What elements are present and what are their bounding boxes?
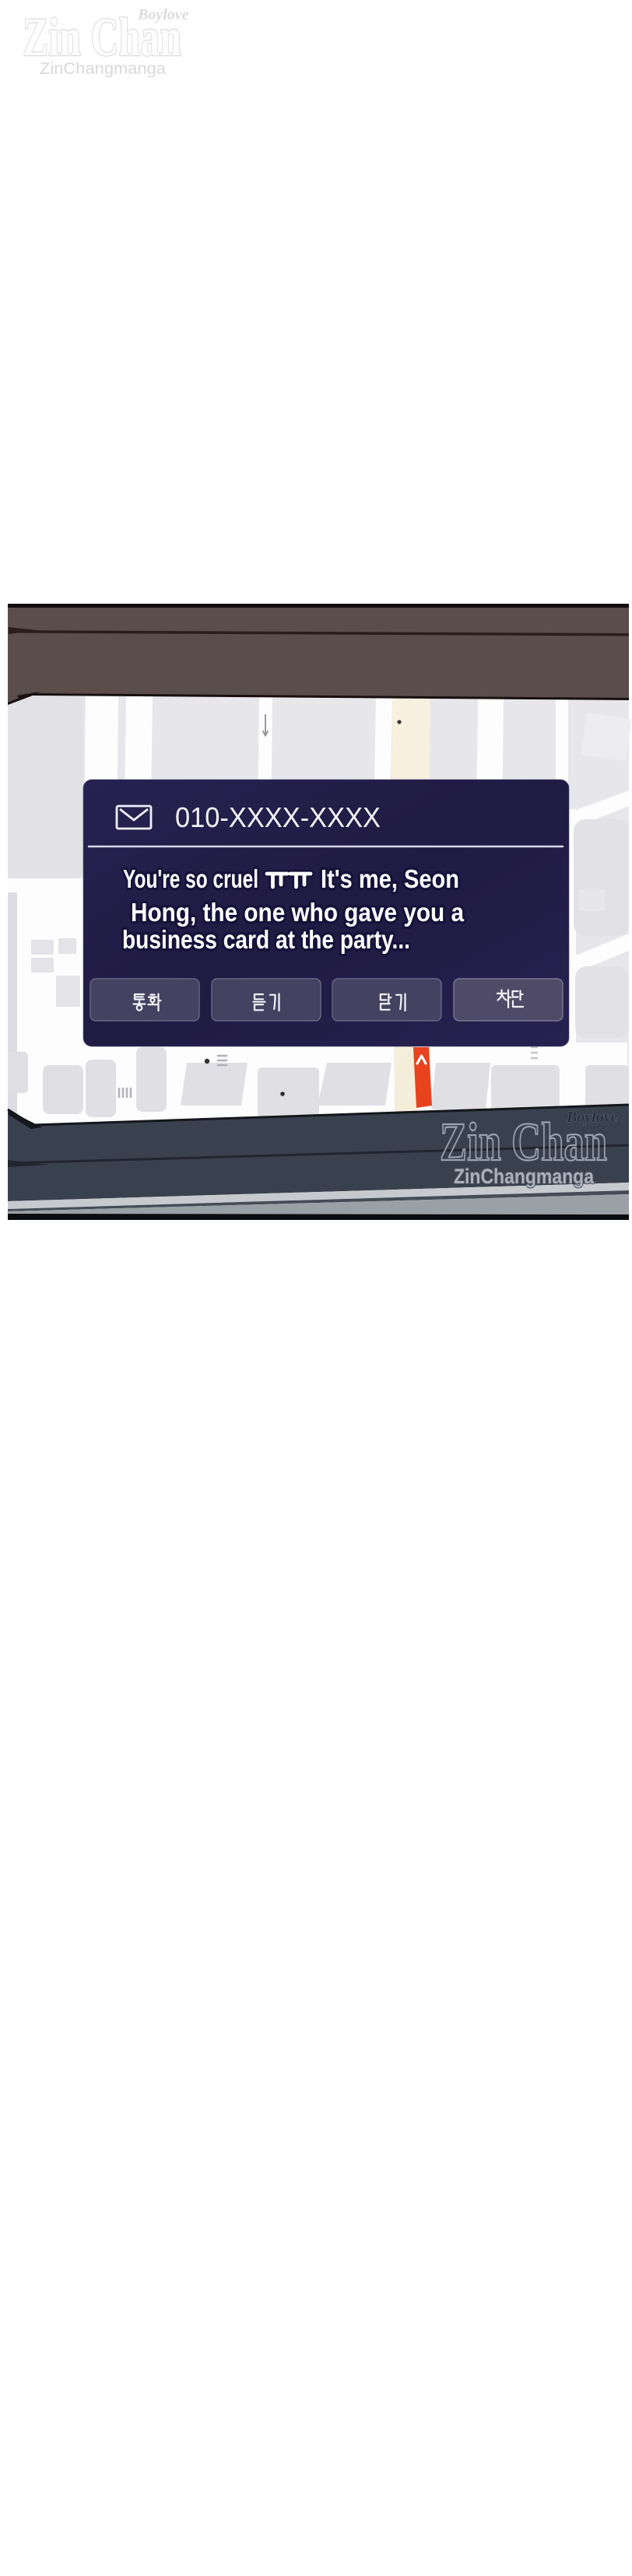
svg-text:business card at the party...: business card at the party...: [122, 925, 410, 954]
svg-text:010-XXXX-XXXX: 010-XXXX-XXXX: [175, 801, 381, 833]
svg-text:You're so cruel: You're so cruel: [123, 864, 258, 893]
svg-text:It's me, Seon: It's me, Seon: [321, 864, 459, 893]
svg-text:Zin Chan: Zin Chan: [440, 1113, 607, 1172]
svg-text:Hong, the one who gave you a: Hong, the one who gave you a: [131, 898, 465, 927]
svg-text:ZinChangmanga: ZinChangmanga: [454, 1165, 595, 1188]
svg-text:ZinChangmanga: ZinChangmanga: [40, 59, 166, 78]
